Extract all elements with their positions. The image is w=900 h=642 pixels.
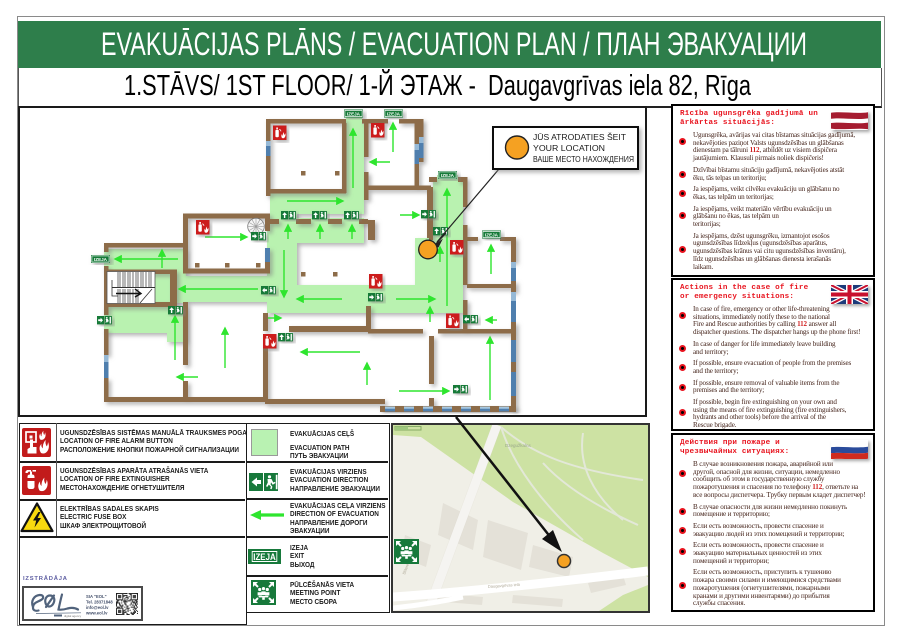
svg-text:IZEJA: IZEJA [347, 112, 361, 117]
svg-text:IZEJA: IZEJA [387, 112, 401, 117]
svg-text:IZEJA: IZEJA [485, 233, 499, 238]
svg-text:ВАШЕ МЕСТО НАХОЖДЕНИЯ: ВАШЕ МЕСТО НАХОЖДЕНИЯ [533, 154, 634, 164]
svg-text:IZEJA: IZEJA [441, 173, 455, 178]
svg-text:IZEJA: IZEJA [94, 257, 108, 262]
svg-text:digital agency: digital agency [64, 614, 82, 618]
svg-text:www.eol.lv: www.eol.lv [85, 611, 108, 616]
svg-text:YOUR LOCATION: YOUR LOCATION [533, 143, 605, 153]
svg-text:JŪS ATRODATIES ŠEIT: JŪS ATRODATIES ŠEIT [533, 132, 627, 142]
svg-text:SIA "EOL": SIA "EOL" [86, 594, 107, 599]
svg-text:Tel. 28371848: Tel. 28371848 [86, 600, 113, 605]
svg-text:info@eol.lv: info@eol.lv [86, 605, 109, 610]
